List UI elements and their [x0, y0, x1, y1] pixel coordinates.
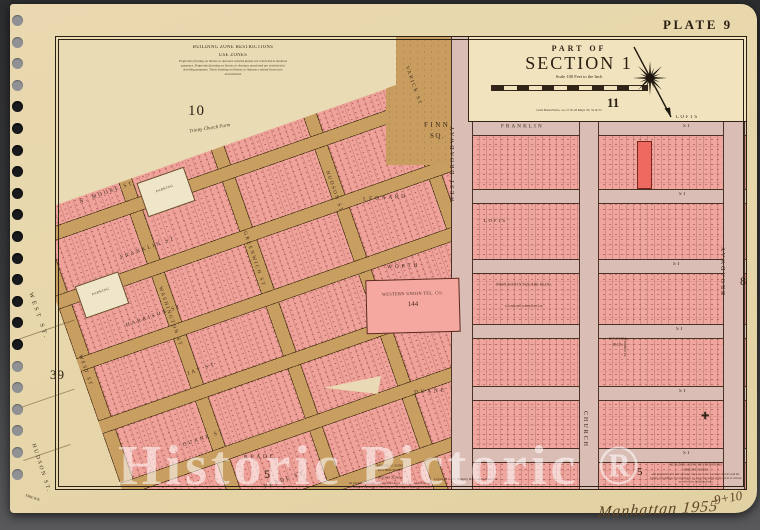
binding-hole	[12, 404, 23, 415]
binding-hole	[12, 382, 23, 393]
avenue-label-hudson: HUDSON ST	[324, 170, 343, 213]
avenue-label-church: CHURCH	[582, 411, 588, 448]
binding-hole	[12, 37, 23, 48]
avenue-label-west-broadway: WEST BROADWAY	[450, 124, 456, 202]
binding-hole	[12, 231, 23, 242]
ward-number-10: 10	[188, 103, 205, 120]
street-label-franklin-east: FRANKLIN	[501, 124, 544, 129]
use-zones-body: Properties fronting on Streets or Avenue…	[178, 60, 288, 77]
street-label-jay: JAY ST	[187, 361, 217, 376]
margin-number-8: 8	[740, 274, 746, 289]
avenue-label-broadway: BROADWAY	[721, 245, 727, 295]
plate-number: PLATE 9	[663, 17, 733, 33]
street-label-franklin: FRANKLIN ST	[119, 236, 176, 260]
ny-state-label-1: N.Y. STATE	[605, 337, 631, 341]
binding-holes	[0, 0, 40, 530]
part-of-label: PART OF	[499, 44, 659, 53]
ny-state-label-2: BLDG.	[605, 343, 631, 347]
binding-hole	[12, 253, 23, 264]
binding-hole	[12, 80, 23, 91]
street-suffix-st: ST	[683, 451, 691, 456]
binding-hole	[12, 425, 23, 436]
binding-hole	[12, 101, 23, 112]
binding-hole	[12, 361, 23, 372]
height-zones-subheading: HEIGHT ZONES	[669, 468, 722, 472]
use-zones-subheading: USE ZONES	[182, 53, 283, 59]
binding-hole	[12, 166, 23, 177]
height-zones-note-left: BUILDING ZONE RESTRICTIONS HEIGHT ZONES …	[347, 464, 433, 490]
binding-hole	[12, 469, 23, 480]
farm-line-label: Trinity Church Farm	[189, 123, 231, 135]
western-union-label: WESTERN UNION TEL. CO.	[380, 291, 446, 297]
western-union-building: WESTERN UNION TEL. CO. 144	[365, 278, 460, 334]
western-union-number: 144	[367, 299, 459, 309]
scale-note: Scale 100 Feet to the Inch	[519, 75, 639, 80]
street-suffix-st: ST	[679, 192, 687, 197]
church-cross-icon: ✚	[701, 411, 709, 422]
street-suffix-st: ST	[673, 262, 681, 267]
height-zones-note-right: BUILDING ZONE RESTRICTIONS HEIGHT ZONES …	[650, 463, 742, 490]
binding-hole	[12, 317, 23, 328]
height-zones-heading: BUILDING ZONE RESTRICTIONS	[365, 464, 415, 473]
binding-hole	[12, 209, 23, 220]
map-canvas: N. MOORE ST FRANKLIN ST HARRISON ST JAY …	[55, 36, 747, 490]
parking-label: PARKING	[152, 183, 178, 195]
merchants-square-building: MERCHANTS SQUARE BLDG. S. KNIGHT JOHNSON…	[476, 283, 572, 325]
knight-johnson-label: S. KNIGHT JOHNSON CO.	[498, 305, 551, 308]
street-label-duane-west: DUANE ST	[182, 428, 225, 447]
parking-label: PARKING	[89, 286, 113, 297]
binding-hole	[12, 188, 23, 199]
street-label-reade: READE	[244, 454, 276, 460]
avenue-label-west: WEST ST	[77, 354, 93, 387]
binding-hole	[12, 296, 23, 307]
binding-hole	[12, 339, 23, 350]
margin-number-39: 39	[50, 367, 65, 383]
bottom-number-5-left: 5	[264, 467, 270, 482]
street-suffix-st: ST	[676, 327, 684, 332]
binding-hole	[12, 58, 23, 69]
copyright-note: Copyright G. W. Bromley & Co. New York N…	[422, 478, 510, 481]
section-title-panel: PART OF SECTION 1 Scale 100 Feet to the …	[468, 37, 747, 122]
street-suffix-st: ST	[679, 389, 687, 394]
finn-square-label-2: SQ.	[430, 132, 445, 140]
section-title: SECTION 1	[489, 53, 669, 74]
avenue-label-washington: WASHINGTON ST	[157, 286, 183, 347]
use-zones-note: BUILDING ZONE RESTRICTIONS USE ZONES Pro…	[168, 45, 298, 90]
height-zones-heading: BUILDING ZONE RESTRICTIONS	[669, 463, 722, 467]
highlighted-parcel	[637, 141, 652, 189]
height-zones-body: All properties this side of heavy lines …	[650, 473, 742, 484]
plates-reference-note: Gold Book Plates, 24, 27 & 28 Maps 30, 3…	[514, 109, 624, 112]
bottom-number-5-right: 5	[637, 466, 643, 478]
lofts-label: LOFTS	[484, 219, 507, 224]
ny-state-building: N.Y. STATE BLDG.	[596, 337, 640, 349]
height-zones-subheading: HEIGHT ZONES	[365, 476, 415, 480]
atlas-photo: PLATE 9 39 8 WEST ST. HUDSON ST. ERIE R.…	[0, 0, 760, 530]
merchants-square-label: MERCHANTS SQUARE BLDG.	[491, 283, 556, 287]
binding-hole	[12, 15, 23, 26]
binding-hole	[12, 447, 23, 458]
use-zones-heading: BUILDING ZONE RESTRICTIONS	[182, 45, 283, 51]
binding-hole	[12, 274, 23, 285]
height-zones-body: All properties this side of heavy lines …	[347, 482, 433, 491]
binding-hole	[12, 145, 23, 156]
finn-square-label-1: FINN	[424, 121, 450, 129]
street-suffix-st: ST	[683, 124, 691, 129]
avenue-label-greenwich: GREENWICH ST	[241, 231, 265, 288]
binding-hole	[12, 123, 23, 134]
lofts-label: LOFTS	[676, 115, 699, 120]
